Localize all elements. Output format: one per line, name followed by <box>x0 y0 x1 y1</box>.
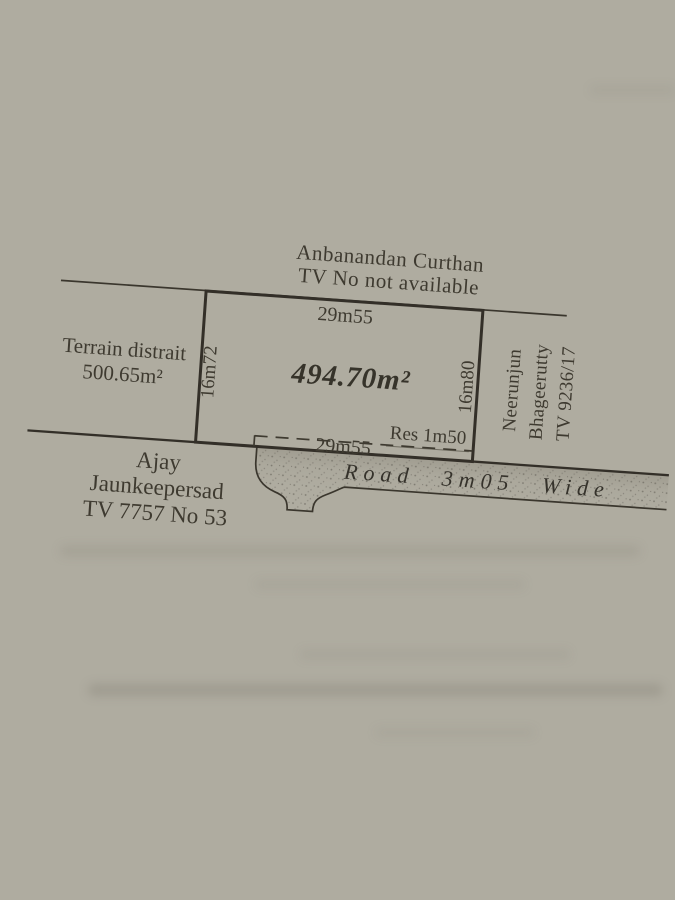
plot-left-depth: 16m72 <box>197 345 223 399</box>
plot-bottom-width: 29m55 <box>315 434 372 461</box>
south-neighbor-label: Ajay Jaunkeepersad TV 7757 No 53 <box>44 441 269 534</box>
reserve-end-tick <box>254 435 255 446</box>
survey-plan-photo: Anbanandan Curthan TV No not available T… <box>0 0 675 900</box>
plot-right-depth: 16m80 <box>455 360 481 414</box>
survey-diagram: Anbanandan Curthan TV No not available T… <box>0 0 675 900</box>
east-neighbor-label: Neerunjun Bhageerutty TV 9236/17 <box>496 341 584 443</box>
plot-top-width: 29m55 <box>317 303 374 330</box>
